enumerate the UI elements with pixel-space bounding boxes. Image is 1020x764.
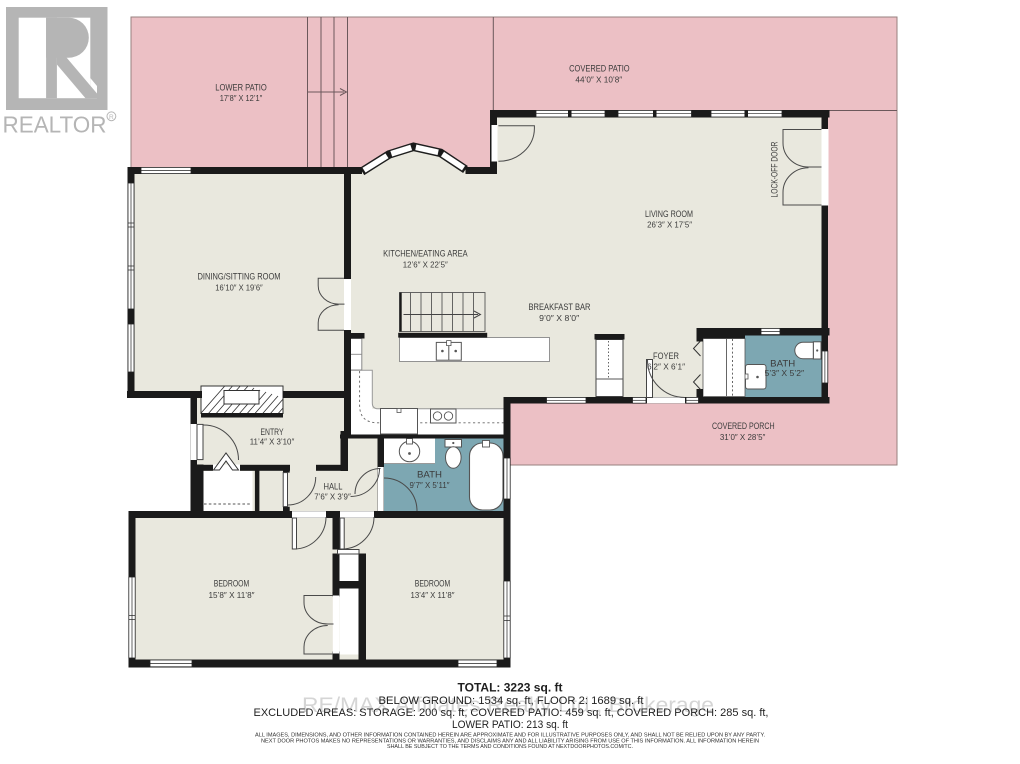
svg-text:ENTRY: ENTRY	[261, 427, 284, 437]
svg-text:9’0″ X 8’0″: 9’0″ X 8’0″	[539, 314, 579, 323]
svg-text:LOWER PATIO: LOWER PATIO	[215, 83, 267, 93]
svg-text:BATH: BATH	[417, 469, 442, 479]
svg-text:HALL: HALL	[324, 481, 343, 491]
svg-text:5’3″ X 5’2″: 5’3″ X 5’2″	[765, 369, 805, 378]
svg-text:7’6″ X 3’9″: 7’6″ X 3’9″	[314, 493, 351, 502]
svg-text:13’4″ X 11’8″: 13’4″ X 11’8″	[411, 591, 455, 600]
svg-text:TOTAL: 3223 sq. ft: TOTAL: 3223 sq. ft	[458, 683, 563, 695]
svg-text:11’4″ X 3’10″: 11’4″ X 3’10″	[250, 437, 295, 446]
svg-text:FOYER: FOYER	[653, 351, 679, 361]
svg-text:COVERED PORCH: COVERED PORCH	[712, 421, 775, 431]
svg-text:9’7″ X 5’11″: 9’7″ X 5’11″	[410, 481, 450, 490]
svg-text:BREAKFAST BAR: BREAKFAST BAR	[529, 302, 591, 312]
svg-text:BEDROOM: BEDROOM	[415, 579, 451, 589]
svg-text:REALTOR: REALTOR	[3, 112, 107, 138]
svg-text:26’3″ X 17’5″: 26’3″ X 17’5″	[647, 220, 692, 229]
svg-text:COVERED PATIO: COVERED PATIO	[569, 64, 630, 74]
svg-text:12’6″ X 22’5″: 12’6″ X 22’5″	[403, 261, 448, 270]
svg-text:15’8″ X 11’8″: 15’8″ X 11’8″	[209, 591, 255, 600]
svg-text:R: R	[109, 114, 114, 121]
svg-text:LIVING ROOM: LIVING ROOM	[645, 209, 693, 219]
svg-text:LOCK-OFF DOOR: LOCK-OFF DOOR	[770, 141, 780, 197]
svg-text:EXCLUDED AREAS: STORAGE: 200 s: EXCLUDED AREAS: STORAGE: 200 sq. ft, COV…	[254, 707, 769, 719]
svg-text:16’10″ X 19’6″: 16’10″ X 19’6″	[215, 284, 263, 293]
svg-text:44’0″ X 10’8″: 44’0″ X 10’8″	[575, 76, 622, 85]
svg-text:DINING/SITTING ROOM: DINING/SITTING ROOM	[198, 271, 281, 281]
svg-text:KITCHEN/EATING AREA: KITCHEN/EATING AREA	[383, 248, 468, 258]
svg-text:BELOW GROUND: 1534 sq. ft, FLO: BELOW GROUND: 1534 sq. ft, FLOOR 2: 1689…	[379, 695, 644, 707]
svg-text:LOWER PATIO: 213 sq. ft: LOWER PATIO: 213 sq. ft	[452, 719, 568, 731]
svg-text:BATH: BATH	[770, 359, 795, 369]
svg-text:SHALL BE SUBJECT TO THE TERMS: SHALL BE SUBJECT TO THE TERMS AND CONDIT…	[387, 744, 633, 750]
svg-text:BEDROOM: BEDROOM	[214, 579, 250, 589]
svg-text:6’2″ X 6’1″: 6’2″ X 6’1″	[647, 363, 685, 372]
svg-text:31’0″ X 28’5″: 31’0″ X 28’5″	[720, 433, 766, 442]
svg-text:17’8″ X 12’1″: 17’8″ X 12’1″	[220, 94, 263, 103]
